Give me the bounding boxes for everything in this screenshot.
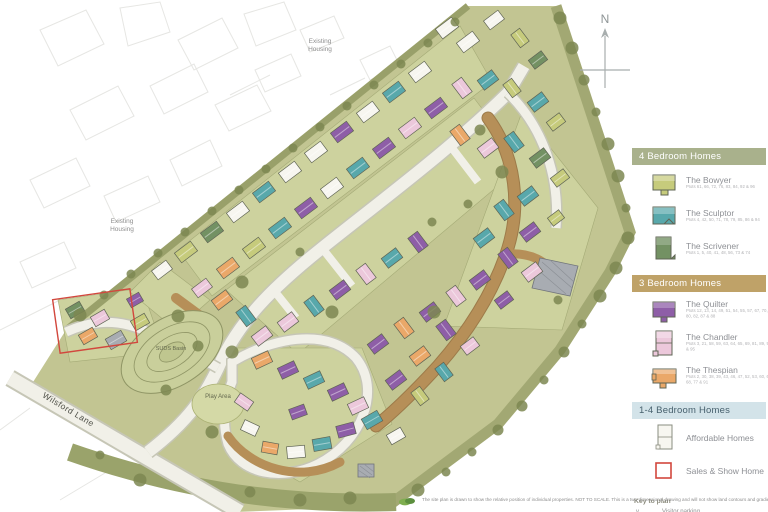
bowyer-house-icon <box>650 171 680 197</box>
house-type-name: The Thespian <box>686 365 768 375</box>
house-type-name: The Chandler <box>686 332 768 342</box>
tree-icon <box>226 346 239 359</box>
tree-icon <box>428 306 441 319</box>
tree-icon <box>554 12 567 25</box>
scrivener-house-icon <box>650 235 680 265</box>
house-type-name: Sales & Show Home <box>686 466 764 476</box>
house-type-plots: Plots 2, 30, 38, 39, 43, 46, 47, 52, 53,… <box>686 375 768 386</box>
tree-icon <box>468 448 477 457</box>
tree-icon <box>496 166 509 179</box>
tree-icon <box>517 401 528 412</box>
house-type-name: Affordable Homes <box>686 433 754 443</box>
tree-icon <box>602 138 615 151</box>
house-type-plots: Plots 4, 42, 50, 71, 78, 79, 85, 86 & 94 <box>686 218 768 223</box>
tree-icon <box>554 296 563 305</box>
tree-icon <box>289 144 298 153</box>
legend-item-thespian: The Thespian Plots 2, 30, 38, 39, 43, 46… <box>650 362 766 392</box>
tree-icon <box>540 376 549 385</box>
tree-icon <box>294 494 307 507</box>
tree-icon <box>370 81 379 90</box>
play-area-label: Play Area <box>203 394 233 402</box>
legend-item-sculptor: The Sculptor Plots 4, 42, 50, 71, 78, 79… <box>650 202 766 232</box>
tree-icon <box>451 18 460 27</box>
house-type-plots: Plots 61, 66, 72, 76, 83, 84, 92 & 96 <box>686 185 768 190</box>
legend-banner-1-4bed: 1-4 Bedroom Homes <box>632 402 766 419</box>
house-type-plots: Plots 1, 5, 40, 41, 48, 56, 73 & 74 <box>686 251 768 256</box>
tree-icon <box>559 347 570 358</box>
tree-icon <box>592 108 601 117</box>
tree-icon <box>206 426 219 439</box>
tree-icon <box>475 125 486 136</box>
tree-icon <box>161 385 172 396</box>
house-type-plots: Plots 3, 21, 58, 59, 63, 64, 65, 69, 81,… <box>686 342 768 353</box>
house-type-name: The Scrivener <box>686 241 768 251</box>
tree-icon <box>424 39 433 48</box>
tree-icon <box>172 310 185 323</box>
legend-item-sales: Sales & Show Home <box>650 456 766 486</box>
tree-icon <box>493 425 504 436</box>
legend-banner-4bed: 4 Bedroom Homes <box>632 148 766 165</box>
north-letter: N <box>578 12 632 26</box>
tree-icon <box>397 60 406 69</box>
existing-housing-label-top: Existing Housing <box>296 38 344 54</box>
tree-icon <box>208 207 217 216</box>
house-type-plots: Plots 12, 13, 14, 49, 51, 54, 55, 57, 67… <box>686 309 768 320</box>
tree-icon <box>326 306 339 319</box>
north-arrow-icon <box>578 26 632 92</box>
tree-icon <box>181 228 190 237</box>
tree-icon <box>610 262 623 275</box>
tree-icon <box>344 492 357 505</box>
footer: The site plan is drawn to show the relat… <box>398 494 768 506</box>
play-area-shape <box>192 384 244 424</box>
house-type-name: The Quilter <box>686 299 768 309</box>
legend-item-bowyer: The Bowyer Plots 61, 66, 72, 76, 83, 84,… <box>650 169 766 199</box>
tree-icon <box>594 290 607 303</box>
tree-icon <box>96 451 105 460</box>
house-type-name: The Bowyer <box>686 175 768 185</box>
tree-icon <box>316 123 325 132</box>
disclaimer-text: The site plan is drawn to show the relat… <box>422 498 768 503</box>
tree-icon <box>245 487 256 498</box>
tree-icon <box>236 276 249 289</box>
tree-icon <box>442 468 451 477</box>
tree-icon <box>74 309 87 322</box>
builder-logo-icon <box>398 494 418 506</box>
affordable-homes-icon <box>650 423 680 453</box>
tree-icon <box>343 102 352 111</box>
quilter-house-icon <box>650 298 680 324</box>
legend-item-chandler: The Chandler Plots 3, 21, 58, 59, 63, 64… <box>650 329 766 359</box>
legend-item-quilter: The Quilter Plots 12, 13, 14, 49, 51, 54… <box>650 296 766 326</box>
tree-icon <box>464 200 473 209</box>
tree-icon <box>296 248 305 257</box>
suds-basin-label: SUDS Basin <box>154 346 188 353</box>
legend-banner-3bed: 3 Bedroom Homes <box>632 275 766 292</box>
thespian-house-icon <box>650 364 680 390</box>
legend-item-affordable: Affordable Homes <box>650 423 766 453</box>
tree-icon <box>134 474 147 487</box>
tree-icon <box>622 204 631 213</box>
tree-icon <box>566 42 579 55</box>
tree-icon <box>262 165 271 174</box>
sales-show-home-icon <box>650 460 680 482</box>
site-plan-page: Existing Housing Existing Housing Wilsfo… <box>0 0 768 512</box>
tree-icon <box>154 249 163 258</box>
tree-icon <box>127 270 136 279</box>
tree-icon <box>235 186 244 195</box>
north-arrow: N <box>578 12 632 96</box>
legend-item-scrivener: The Scrivener Plots 1, 5, 40, 41, 48, 56… <box>650 235 766 265</box>
tree-icon <box>612 170 625 183</box>
existing-housing-label-left: Existing Housing <box>98 218 146 234</box>
chandler-house-icon <box>650 329 680 359</box>
tree-icon <box>193 341 204 352</box>
legend-panel: 4 Bedroom Homes The Bowyer Plots 61, 66,… <box>632 148 766 512</box>
house-type-name: The Sculptor <box>686 208 768 218</box>
sculptor-house-icon <box>650 204 680 230</box>
tree-icon <box>578 320 587 329</box>
tree-icon <box>428 218 437 227</box>
